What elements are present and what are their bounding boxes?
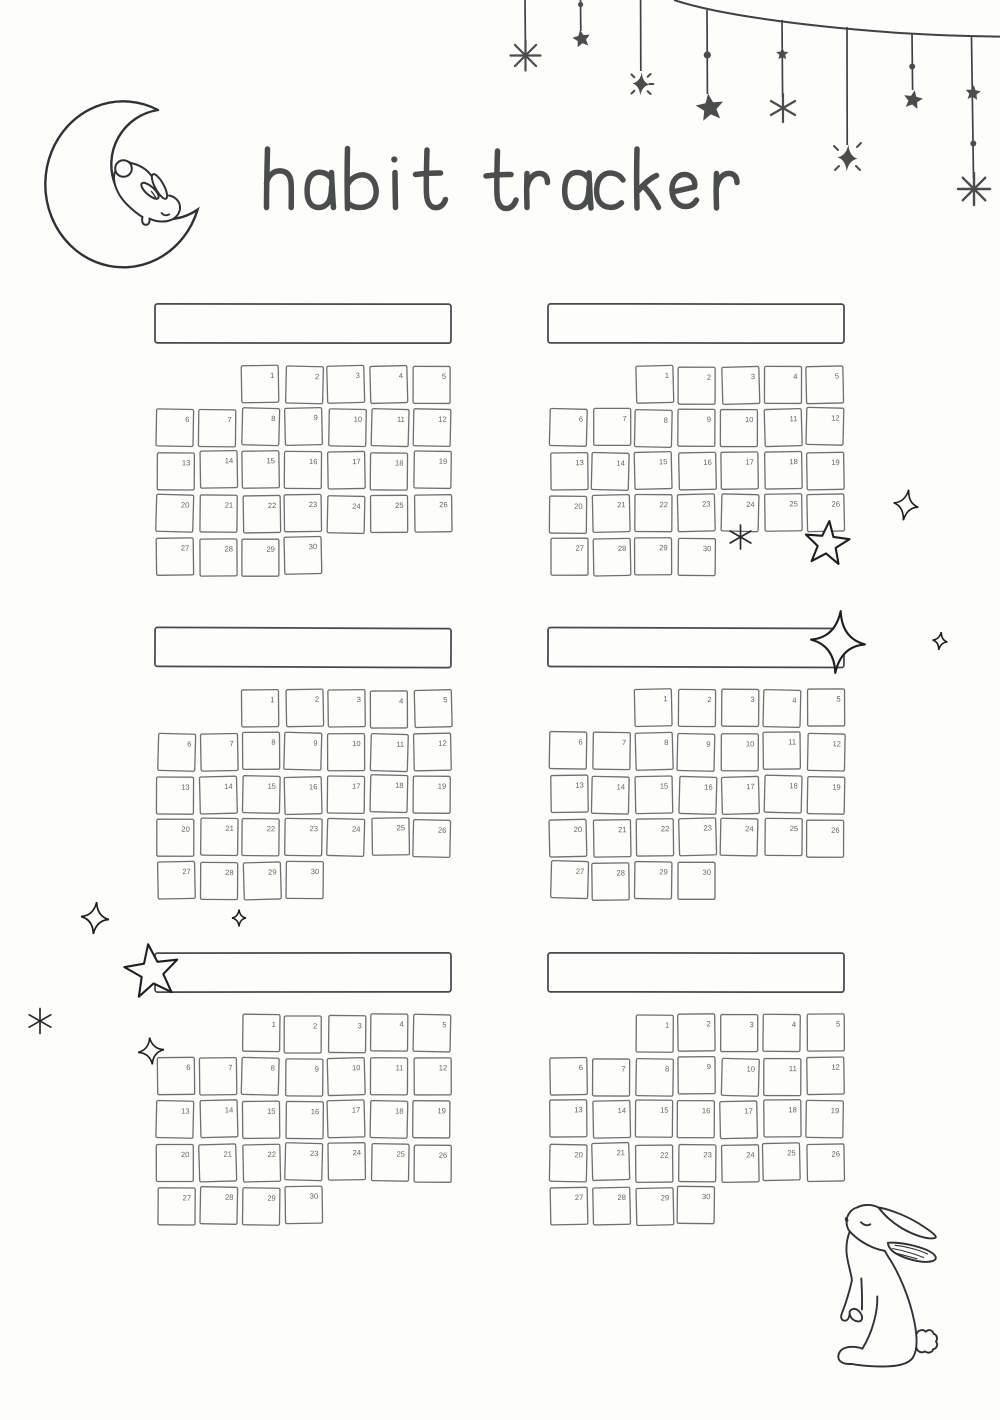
svg-text:10: 10: [746, 1064, 755, 1073]
svg-text:2: 2: [707, 373, 711, 382]
svg-text:15: 15: [267, 782, 276, 791]
svg-text:3: 3: [751, 372, 755, 381]
svg-text:3: 3: [750, 695, 754, 704]
svg-text:12: 12: [831, 413, 840, 422]
svg-text:10: 10: [352, 1063, 361, 1072]
svg-text:13: 13: [575, 458, 584, 467]
svg-text:6: 6: [185, 415, 189, 424]
svg-text:16: 16: [703, 458, 712, 467]
svg-text:6: 6: [578, 737, 582, 746]
svg-text:9: 9: [706, 740, 710, 749]
svg-text:7: 7: [622, 414, 626, 423]
svg-text:1: 1: [665, 1021, 669, 1030]
svg-text:1: 1: [663, 694, 667, 703]
svg-text:4: 4: [399, 371, 403, 380]
svg-text:26: 26: [439, 1151, 448, 1160]
svg-text:11: 11: [789, 414, 797, 423]
svg-text:3: 3: [356, 371, 360, 380]
svg-text:12: 12: [438, 415, 447, 424]
svg-text:7: 7: [621, 1065, 625, 1074]
svg-text:19: 19: [832, 783, 841, 792]
svg-text:16: 16: [702, 1106, 710, 1115]
svg-text:10: 10: [745, 415, 753, 424]
svg-text:14: 14: [225, 456, 234, 465]
svg-text:8: 8: [664, 416, 668, 425]
svg-text:27: 27: [575, 1193, 584, 1202]
svg-text:20: 20: [181, 1150, 189, 1159]
svg-text:28: 28: [225, 868, 234, 877]
svg-text:14: 14: [224, 782, 233, 791]
svg-text:16: 16: [311, 1107, 320, 1116]
svg-text:25: 25: [789, 499, 798, 508]
svg-text:23: 23: [309, 500, 318, 509]
svg-text:19: 19: [437, 1106, 446, 1115]
svg-text:19: 19: [831, 458, 840, 467]
svg-text:7: 7: [228, 1063, 232, 1072]
svg-text:30: 30: [309, 542, 318, 551]
svg-text:1: 1: [270, 371, 274, 380]
svg-text:21: 21: [225, 501, 234, 510]
svg-text:14: 14: [616, 782, 625, 791]
svg-text:27: 27: [183, 1193, 192, 1202]
svg-text:9: 9: [707, 415, 711, 424]
svg-text:24: 24: [746, 500, 755, 509]
svg-text:23: 23: [310, 1149, 319, 1158]
svg-text:17: 17: [745, 457, 754, 466]
svg-text:6: 6: [579, 415, 583, 424]
svg-text:12: 12: [439, 1063, 447, 1072]
svg-text:14: 14: [616, 459, 625, 468]
svg-text:22: 22: [659, 500, 667, 509]
svg-text:22: 22: [267, 1150, 276, 1159]
svg-text:11: 11: [788, 737, 796, 746]
svg-text:13: 13: [574, 1105, 583, 1114]
svg-text:8: 8: [665, 1065, 669, 1074]
svg-text:30: 30: [311, 867, 320, 876]
svg-text:15: 15: [660, 1106, 669, 1115]
svg-text:18: 18: [395, 1107, 404, 1116]
svg-text:17: 17: [352, 1105, 361, 1114]
svg-text:25: 25: [396, 1150, 405, 1159]
svg-text:10: 10: [354, 415, 363, 424]
svg-text:5: 5: [836, 694, 840, 703]
svg-text:10: 10: [352, 739, 360, 748]
svg-text:2: 2: [313, 1022, 317, 1031]
svg-text:13: 13: [181, 1107, 190, 1116]
svg-text:19: 19: [831, 1106, 840, 1115]
svg-text:21: 21: [618, 825, 627, 834]
svg-text:22: 22: [660, 1151, 669, 1160]
svg-text:18: 18: [789, 781, 798, 790]
svg-text:16: 16: [704, 783, 713, 792]
svg-text:20: 20: [574, 1150, 583, 1159]
svg-text:28: 28: [618, 544, 627, 553]
svg-text:5: 5: [442, 1020, 446, 1029]
svg-text:1: 1: [270, 695, 274, 704]
svg-text:18: 18: [395, 459, 404, 468]
svg-text:9: 9: [315, 1065, 319, 1074]
svg-text:22: 22: [267, 824, 276, 833]
svg-text:24: 24: [352, 825, 361, 834]
svg-text:4: 4: [793, 372, 797, 381]
svg-text:19: 19: [439, 457, 448, 466]
svg-text:12: 12: [438, 739, 447, 748]
svg-text:21: 21: [617, 500, 626, 509]
svg-text:27: 27: [182, 867, 191, 876]
svg-text:29: 29: [659, 543, 667, 552]
svg-text:24: 24: [746, 1150, 755, 1159]
svg-text:29: 29: [659, 867, 668, 876]
svg-text:22: 22: [268, 501, 277, 510]
svg-text:20: 20: [181, 825, 189, 834]
svg-text:23: 23: [703, 1150, 712, 1159]
svg-text:14: 14: [618, 1106, 627, 1115]
svg-text:8: 8: [271, 1064, 275, 1073]
svg-text:15: 15: [267, 1107, 276, 1116]
svg-text:24: 24: [745, 824, 754, 833]
svg-text:2: 2: [707, 1019, 711, 1028]
svg-text:5: 5: [835, 371, 839, 380]
svg-text:7: 7: [622, 738, 626, 747]
svg-text:29: 29: [266, 545, 274, 554]
svg-text:13: 13: [182, 458, 190, 467]
svg-text:8: 8: [271, 414, 275, 423]
svg-text:18: 18: [789, 457, 798, 466]
svg-text:6: 6: [186, 1063, 190, 1072]
svg-text:2: 2: [315, 695, 319, 704]
svg-text:12: 12: [831, 1063, 840, 1072]
svg-text:7: 7: [227, 415, 231, 424]
svg-text:9: 9: [313, 738, 317, 747]
svg-text:8: 8: [271, 738, 275, 747]
svg-text:28: 28: [617, 1193, 626, 1202]
svg-text:4: 4: [400, 1020, 404, 1029]
svg-text:16: 16: [309, 457, 318, 466]
svg-text:8: 8: [664, 738, 668, 747]
svg-text:13: 13: [575, 781, 584, 790]
svg-text:16: 16: [309, 782, 318, 791]
svg-text:30: 30: [702, 1192, 711, 1201]
svg-text:5: 5: [443, 695, 447, 704]
svg-text:2: 2: [707, 695, 711, 704]
svg-text:23: 23: [702, 499, 711, 508]
svg-text:28: 28: [224, 544, 233, 553]
svg-text:29: 29: [661, 1193, 670, 1202]
svg-text:13: 13: [181, 783, 189, 792]
svg-text:17: 17: [744, 1107, 753, 1116]
svg-text:15: 15: [659, 457, 668, 466]
svg-text:2: 2: [315, 372, 319, 381]
svg-text:21: 21: [223, 1150, 232, 1159]
svg-text:27: 27: [576, 867, 585, 876]
svg-text:11: 11: [397, 415, 405, 424]
svg-text:17: 17: [352, 782, 361, 791]
svg-text:6: 6: [579, 1063, 583, 1072]
svg-text:30: 30: [310, 1192, 319, 1201]
svg-text:6: 6: [187, 740, 191, 749]
svg-text:3: 3: [749, 1020, 753, 1029]
svg-text:28: 28: [616, 868, 625, 877]
svg-text:9: 9: [707, 1062, 711, 1071]
svg-text:23: 23: [703, 823, 712, 832]
svg-text:15: 15: [660, 782, 669, 791]
svg-text:26: 26: [438, 826, 447, 835]
svg-text:24: 24: [353, 1148, 362, 1157]
svg-text:27: 27: [181, 543, 190, 552]
svg-text:11: 11: [396, 1063, 404, 1072]
svg-text:4: 4: [399, 696, 403, 705]
svg-text:29: 29: [267, 1194, 276, 1203]
svg-text:19: 19: [438, 782, 447, 791]
svg-text:20: 20: [181, 500, 190, 509]
svg-text:9: 9: [313, 413, 317, 422]
svg-text:21: 21: [616, 1148, 625, 1157]
svg-text:30: 30: [703, 868, 711, 877]
svg-text:25: 25: [787, 1148, 796, 1157]
svg-text:15: 15: [266, 456, 275, 465]
svg-text:4: 4: [792, 696, 796, 705]
svg-text:29: 29: [268, 868, 277, 877]
svg-text:26: 26: [831, 826, 839, 835]
svg-text:18: 18: [395, 781, 404, 790]
svg-text:25: 25: [397, 823, 406, 832]
svg-text:22: 22: [661, 824, 670, 833]
svg-text:1: 1: [272, 1020, 276, 1029]
svg-text:23: 23: [310, 824, 319, 833]
svg-text:14: 14: [225, 1105, 234, 1114]
svg-text:20: 20: [574, 825, 583, 834]
svg-text:30: 30: [703, 544, 712, 553]
svg-text:18: 18: [788, 1105, 797, 1114]
svg-text:11: 11: [396, 740, 404, 749]
svg-text:25: 25: [790, 824, 799, 833]
svg-text:7: 7: [229, 739, 233, 748]
svg-text:20: 20: [574, 502, 583, 511]
svg-text:27: 27: [576, 544, 584, 553]
svg-text:10: 10: [746, 739, 754, 748]
svg-text:25: 25: [395, 501, 404, 510]
svg-text:28: 28: [225, 1193, 234, 1202]
svg-text:5: 5: [836, 1019, 840, 1028]
svg-text:1: 1: [665, 371, 669, 380]
svg-text:26: 26: [831, 500, 840, 509]
svg-text:24: 24: [352, 502, 361, 511]
svg-text:3: 3: [357, 695, 361, 704]
svg-text:17: 17: [746, 782, 755, 791]
svg-text:26: 26: [439, 500, 448, 509]
svg-text:12: 12: [832, 739, 841, 748]
svg-text:21: 21: [225, 824, 234, 833]
svg-text:3: 3: [358, 1021, 362, 1030]
svg-text:17: 17: [352, 457, 361, 466]
svg-text:11: 11: [789, 1064, 797, 1073]
svg-text:5: 5: [442, 372, 446, 381]
svg-text:4: 4: [792, 1020, 796, 1029]
svg-text:26: 26: [832, 1149, 841, 1158]
